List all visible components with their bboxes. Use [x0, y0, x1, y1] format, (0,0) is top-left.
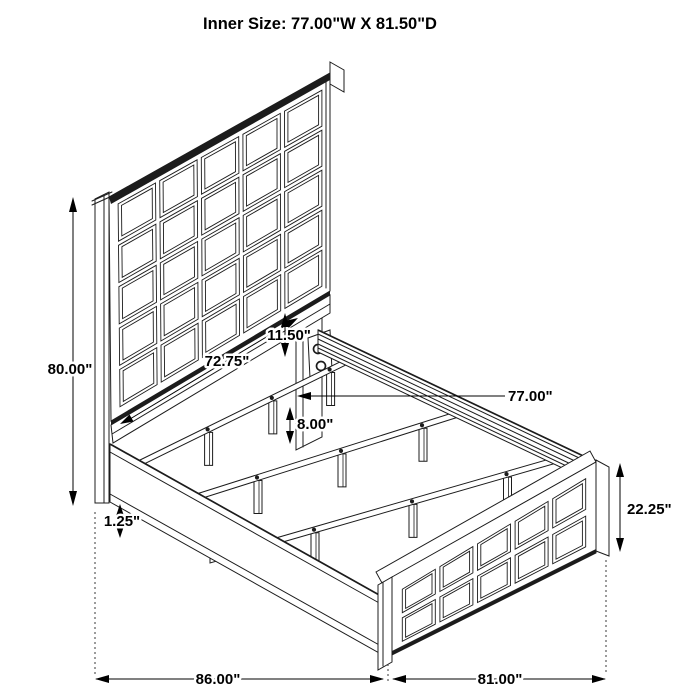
diagram-title: Inner Size: 77.00"W X 81.50"D — [203, 15, 437, 33]
screw-dot — [255, 475, 259, 479]
slat-leg — [409, 504, 417, 537]
screw-dot — [410, 499, 414, 503]
dim-overall-height: 80.00" — [48, 197, 93, 506]
screw-dot — [312, 528, 316, 532]
screw-dot — [206, 427, 210, 431]
slat-leg — [269, 401, 277, 434]
arrow-down-icon — [69, 491, 77, 506]
slat-leg — [254, 481, 262, 514]
screw-dot — [504, 472, 508, 476]
headboard — [92, 62, 344, 503]
headboard-left-post — [95, 192, 109, 503]
slat-leg — [327, 373, 335, 406]
arrow-up-icon — [69, 197, 77, 212]
dim-overall-length: 86.00" — [95, 671, 384, 688]
dim-inner-width-label: 77.00" — [508, 388, 553, 405]
side-rail-far — [318, 330, 596, 484]
arrow-up-icon — [616, 463, 624, 477]
bed-dimension-diagram: 80.00" 72.75" 11.50" 77.00" 8.00" — [0, 0, 700, 700]
dim-overall-width-label: 81.00" — [478, 671, 523, 688]
slat-leg — [419, 428, 427, 461]
dim-footboard-height: 22.25" — [616, 463, 672, 552]
dim-overall-height-label: 80.00" — [48, 361, 93, 378]
screw-dot — [328, 367, 332, 371]
arrow-right-icon — [592, 675, 606, 683]
slat-leg — [338, 454, 346, 487]
screw-dot — [339, 449, 343, 453]
arrow-right-icon — [370, 675, 384, 683]
dim-rail-lip-label: 1.25" — [104, 513, 140, 530]
dim-footboard-height-label: 22.25" — [627, 501, 672, 518]
slat-leg — [205, 432, 213, 465]
footboard-right-cap — [596, 460, 609, 556]
screw-dot — [270, 396, 274, 400]
screw-dot — [420, 423, 424, 427]
dim-headboard-width-label: 72.75" — [205, 353, 250, 370]
arrow-down-icon — [616, 538, 624, 552]
footboard — [376, 451, 609, 670]
dim-overall-length-label: 86.00" — [196, 671, 241, 688]
arrow-left-icon — [392, 675, 406, 683]
arrow-up-icon — [286, 407, 294, 420]
arrow-down-icon — [281, 343, 289, 357]
dim-leg-height-label: 8.00" — [297, 416, 333, 433]
diagram-canvas: 80.00" 72.75" 11.50" 77.00" 8.00" — [0, 0, 700, 700]
arrow-left-icon — [95, 675, 109, 683]
dim-overall-width: 81.00" — [392, 671, 606, 688]
dim-headboard-gap-label: 11.50" — [267, 327, 311, 344]
headboard-right-cap — [330, 62, 344, 92]
footboard-left-cap — [378, 577, 392, 670]
arrow-down-icon — [286, 431, 294, 444]
